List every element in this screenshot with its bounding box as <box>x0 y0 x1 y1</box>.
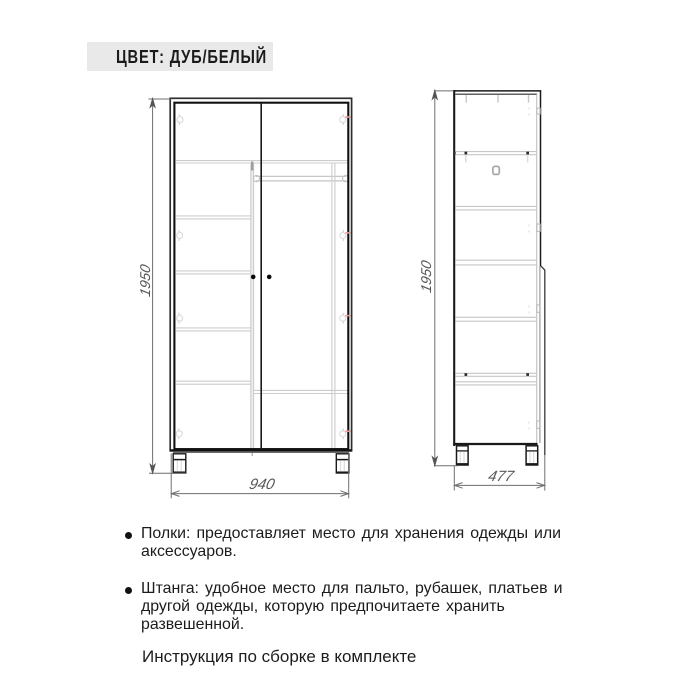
svg-text:940: 940 <box>248 476 277 493</box>
svg-text:1950: 1950 <box>419 259 435 294</box>
svg-text:477: 477 <box>487 468 516 485</box>
svg-text:1950: 1950 <box>138 263 154 298</box>
